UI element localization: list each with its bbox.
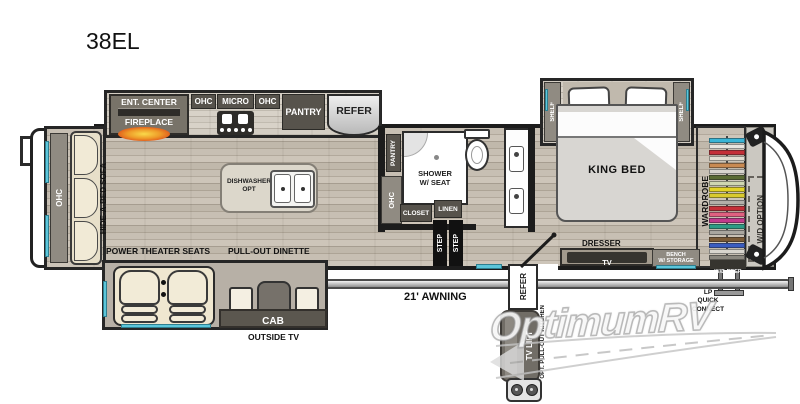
toilet-bowl [465,139,489,171]
cab-label: CAB [262,316,284,327]
dresser-tv-bar: TV [567,252,647,263]
vanity-faucet [514,152,519,157]
model-title: 38EL [86,28,140,55]
wardrobe-label: WARDROBE [700,176,710,227]
island-sink [270,170,315,208]
tv-lift-label: TV LIFT [525,331,534,360]
theater-seats [113,266,215,326]
window [121,324,211,328]
console-cupholder [161,292,166,297]
cab-cabinet: CAB [219,309,327,328]
cooktop-burner [238,114,248,124]
vanity-faucet [514,194,519,199]
tv-lift-label-box: TV LIFT [520,312,538,380]
wall-ohc-label: OHC [387,192,396,209]
grill-dot [515,388,518,391]
shower-seat [404,133,428,157]
clothes-hanger [709,224,745,229]
ohc-left-cabinet: OHC [191,94,216,109]
window [45,141,49,183]
sofa-cushion [74,178,98,218]
clothes-hanger [709,230,745,235]
refer-label: REFER [336,105,372,117]
clothes-hanger [709,150,745,155]
power-theater-seats-label: POWER THEATER SEATS [106,246,210,256]
lp-line2: QUICK [686,297,730,305]
clothes-hanger [709,243,745,248]
wardrobe-area: WARDROBE [696,126,746,268]
clothes-hanger [709,169,745,174]
living-slide: CAB [102,260,328,330]
king-bed: KING BED [556,104,678,222]
wd-prep-cabinet: W/D PREP [710,260,746,269]
window [45,215,49,257]
clothes-hanger [709,187,745,192]
fireplace-label: FIREPLACE [111,117,187,127]
pantry-cabinet: PANTRY [282,94,325,130]
step-upper-label: STEP [437,234,444,252]
outdoor-refer: REFER [508,264,538,310]
window [476,264,502,269]
refer-cabinet: REFER [327,94,381,136]
opt-kitchen-label: OPT. PULL-OUT KITCHEN [540,305,546,379]
theater-seat-back [167,270,208,305]
floorplan-38el: 38EL OHC HIDE-A-BED SOFA ENT. CENTER FIR… [0,0,800,404]
vanity-sink [509,188,524,214]
shower-line1: SHOWER [404,169,466,178]
theater-seat-cushion [121,314,158,323]
clothes-hanger [709,193,745,198]
gear-foot [714,290,744,296]
opt-kitchen-label-box: OPT. PULL-OUT KITCHEN [537,294,549,390]
clothes-hanger [709,138,745,143]
wd-prep-label: W/D PREP [714,269,741,275]
clothes-hanger [709,163,745,168]
toilet-bowl-inner [471,146,483,164]
theater-seat-cushion [121,305,158,314]
clothes-hanger [709,249,745,254]
rear-ohc-label: OHC [55,189,64,207]
outdoor-refer-label: REFER [519,273,528,300]
linen-cabinet: LINEN [434,200,462,218]
wall-pantry-label: PANTRY [390,140,397,166]
step-upper: STEP [433,220,447,266]
kitchen-island: DISHWASHER OPT [220,163,318,213]
theater-seat-back [119,270,160,305]
bench-line2: W/ STORAGE [658,258,693,264]
dresser: TV [560,248,654,266]
clothes-hanger [709,206,745,211]
clothes-hanger [709,212,745,217]
dishwasher-opt-label: DISHWASHER OPT [224,178,274,194]
cooktop-knob [248,128,252,132]
cooktop-burner [222,114,232,124]
window [656,265,696,269]
shower-drain [434,155,439,160]
console-cupholder [161,280,166,285]
king-bed-label: KING BED [558,164,676,176]
cooktop-knob [227,128,231,132]
dishwasher-line2: OPT [224,186,274,194]
clothes-hanger [709,237,745,242]
window [103,281,107,317]
closet-cabinet: CLOSET [400,204,432,222]
clothes-hanger [709,181,745,186]
sofa-cushion [74,135,98,175]
wall-bath-bedroom [528,126,535,232]
sofa-cushion [74,221,98,261]
vanity [504,128,530,228]
tv-label: TV [602,258,612,267]
tv-lift-box: TV LIFT [500,310,540,382]
awning-label: 21' AWNING [404,291,467,303]
step-lower-label: STEP [453,234,460,252]
clothes-hanger [709,218,745,223]
dishwasher-line1: DISHWASHER [224,178,274,186]
clothes-hanger [709,200,745,205]
tv-lift-inner [505,316,517,378]
cooktop-knob [241,128,245,132]
shower-line2: W/ SEAT [404,178,466,187]
shower-label: SHOWER W/ SEAT [404,169,466,188]
hide-a-bed-sofa-label: HIDE-A-BED SOFA [99,163,108,234]
shower: SHOWER W/ SEAT [402,131,468,205]
pull-out-dinette-label: PULL-OUT DINETTE [228,246,310,256]
clothes-hanger [709,156,745,161]
clothes-hanger [709,175,745,180]
shelf-left-label: SHELF [550,102,556,122]
micro-cabinet: MICRO [217,94,254,109]
tv-inset [118,108,180,116]
window [545,89,548,111]
wall-pantry-cabinet: PANTRY [386,134,401,172]
grill-dot [530,388,533,391]
shelf-right-label: SHELF [679,102,685,122]
toilet-tank [464,129,490,139]
wall-ohc-cabinet: OHC [381,176,402,224]
cooktop-knob [234,128,238,132]
theater-seat-cushion [169,314,206,323]
vanity-sink [509,146,524,172]
dresser-label: DRESSER [582,239,621,248]
sink-drain [281,187,285,191]
window [686,89,689,111]
clothes-hanger [709,144,745,149]
grill [506,378,542,402]
ohc-right-cabinet: OHC [255,94,280,109]
theater-seat-cushion [169,305,206,314]
cooktop [217,111,254,135]
outside-tv-label: OUTSIDE TV [248,332,299,342]
sink-drain [301,187,305,191]
ent-center-label: ENT. CENTER [111,97,187,107]
rear-ohc-cabinet: OHC [50,133,68,263]
awning-bar [322,279,792,289]
bed-blanket [558,112,676,138]
lp-line3: CONNECT [686,306,730,314]
fireplace-flame [118,127,170,141]
cooktop-knob [220,128,224,132]
wardrobe-clothes [710,138,744,260]
rear-sofa-slide: OHC HIDE-A-BED SOFA [44,126,106,270]
step-lower: STEP [449,220,463,266]
front-cap [758,120,800,280]
